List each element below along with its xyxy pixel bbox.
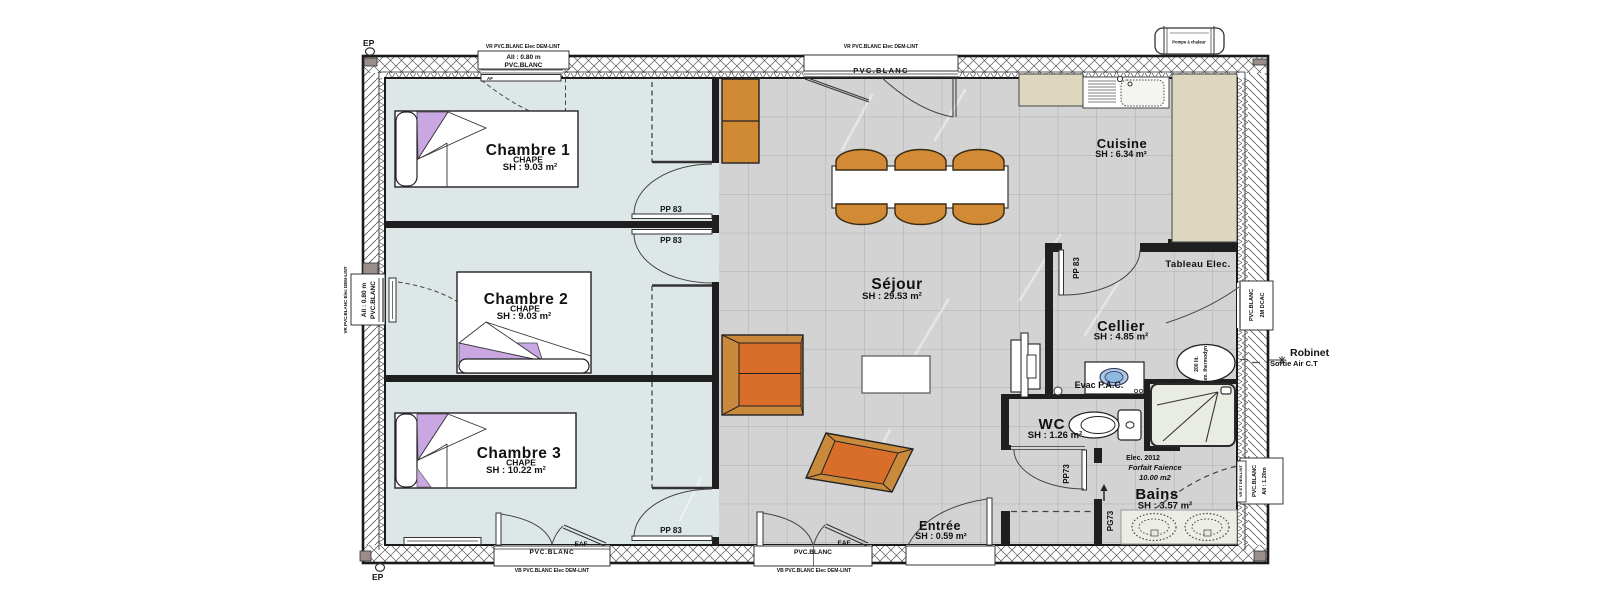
svg-text:PP 83: PP 83 [660, 205, 682, 214]
svg-text:PVC.BLANC: PVC.BLANC [794, 549, 832, 556]
svg-text:PP 83: PP 83 [660, 236, 682, 245]
svg-text:200 lit.: 200 lit. [1194, 356, 1200, 372]
svg-text:VR PVC.BLANC Elec DEM-LINT: VR PVC.BLANC Elec DEM-LINT [486, 44, 560, 50]
svg-text:SH : 6.34 m²: SH : 6.34 m² [1095, 149, 1147, 159]
svg-text:PVC.BLANC: PVC.BLANC [505, 62, 543, 69]
svg-text:PP 83: PP 83 [1072, 257, 1081, 279]
svg-text:Forfait Faience: Forfait Faience [1128, 463, 1181, 472]
svg-text:2M DCAC: 2M DCAC [1260, 292, 1266, 317]
svg-text:PG73: PG73 [1106, 510, 1115, 531]
svg-text:SH : 4.85 m²: SH : 4.85 m² [1094, 332, 1148, 343]
svg-text:VB PVC.BLANC Elec DEM-LINT: VB PVC.BLANC Elec DEM-LINT [515, 568, 589, 574]
svg-text:All : 0.80 m: All : 0.80 m [361, 283, 368, 318]
svg-text:SH : 10.22 m²: SH : 10.22 m² [486, 465, 546, 476]
svg-text:PVC.BLANC: PVC.BLANC [1252, 465, 1258, 497]
svg-text:SH : 9.03 m²: SH : 9.03 m² [497, 311, 551, 322]
svg-text:10.00 m2: 10.00 m2 [1139, 473, 1172, 482]
svg-text:VR PVC.BLANC Elec DEM-LINT: VR PVC.BLANC Elec DEM-LINT [844, 44, 918, 50]
svg-text:All : 0.80 m: All : 0.80 m [506, 54, 541, 61]
svg-text:SH : 9.03 m²: SH : 9.03 m² [503, 162, 557, 173]
svg-text:EP: EP [363, 38, 375, 48]
svg-text:SH : 0.59 m²: SH : 0.59 m² [915, 531, 967, 541]
svg-text:PVC.BLANC: PVC.BLANC [370, 281, 377, 319]
svg-text:VB PVC.BLANC Elec DEM-LINT: VB PVC.BLANC Elec DEM-LINT [777, 568, 851, 574]
svg-text:SH : 3.57 m²: SH : 3.57 m² [1138, 501, 1192, 512]
svg-text:AF: AF [487, 76, 493, 81]
svg-text:PVC.BLANC: PVC.BLANC [1249, 289, 1255, 321]
svg-text:VR PVC.BLANC Elec DEM-LINT: VR PVC.BLANC Elec DEM-LINT [343, 266, 348, 333]
svg-text:Evac P.A.C.: Evac P.A.C. [1075, 380, 1124, 390]
svg-text:PP 83: PP 83 [660, 526, 682, 535]
svg-text:PVC.BLANC: PVC.BLANC [529, 549, 574, 556]
svg-text:Elec. 2012: Elec. 2012 [1126, 455, 1160, 462]
svg-text:SH : 1.26 m²: SH : 1.26 m² [1028, 430, 1082, 441]
svg-text:EP: EP [372, 572, 384, 582]
svg-text:VR ET DEM-LINT: VR ET DEM-LINT [1238, 464, 1243, 497]
svg-text:SH : 29.53 m²: SH : 29.53 m² [862, 291, 922, 302]
svg-text:Tableau Elec.: Tableau Elec. [1165, 259, 1230, 270]
svg-text:um. thermodyn: um. thermodyn [1203, 346, 1209, 382]
svg-text:EAF: EAF [575, 541, 588, 548]
svg-text:Sortie Air C.T: Sortie Air C.T [1270, 359, 1318, 368]
svg-text:Robinet: Robinet [1290, 347, 1330, 359]
svg-text:PP73: PP73 [1062, 464, 1071, 484]
svg-text:EAF: EAF [838, 540, 851, 547]
svg-text:Pompe à chaleur: Pompe à chaleur [1172, 40, 1206, 45]
svg-text:All : 1.20m: All : 1.20m [1262, 467, 1268, 495]
svg-text:PVC.BLANC: PVC.BLANC [853, 66, 908, 75]
